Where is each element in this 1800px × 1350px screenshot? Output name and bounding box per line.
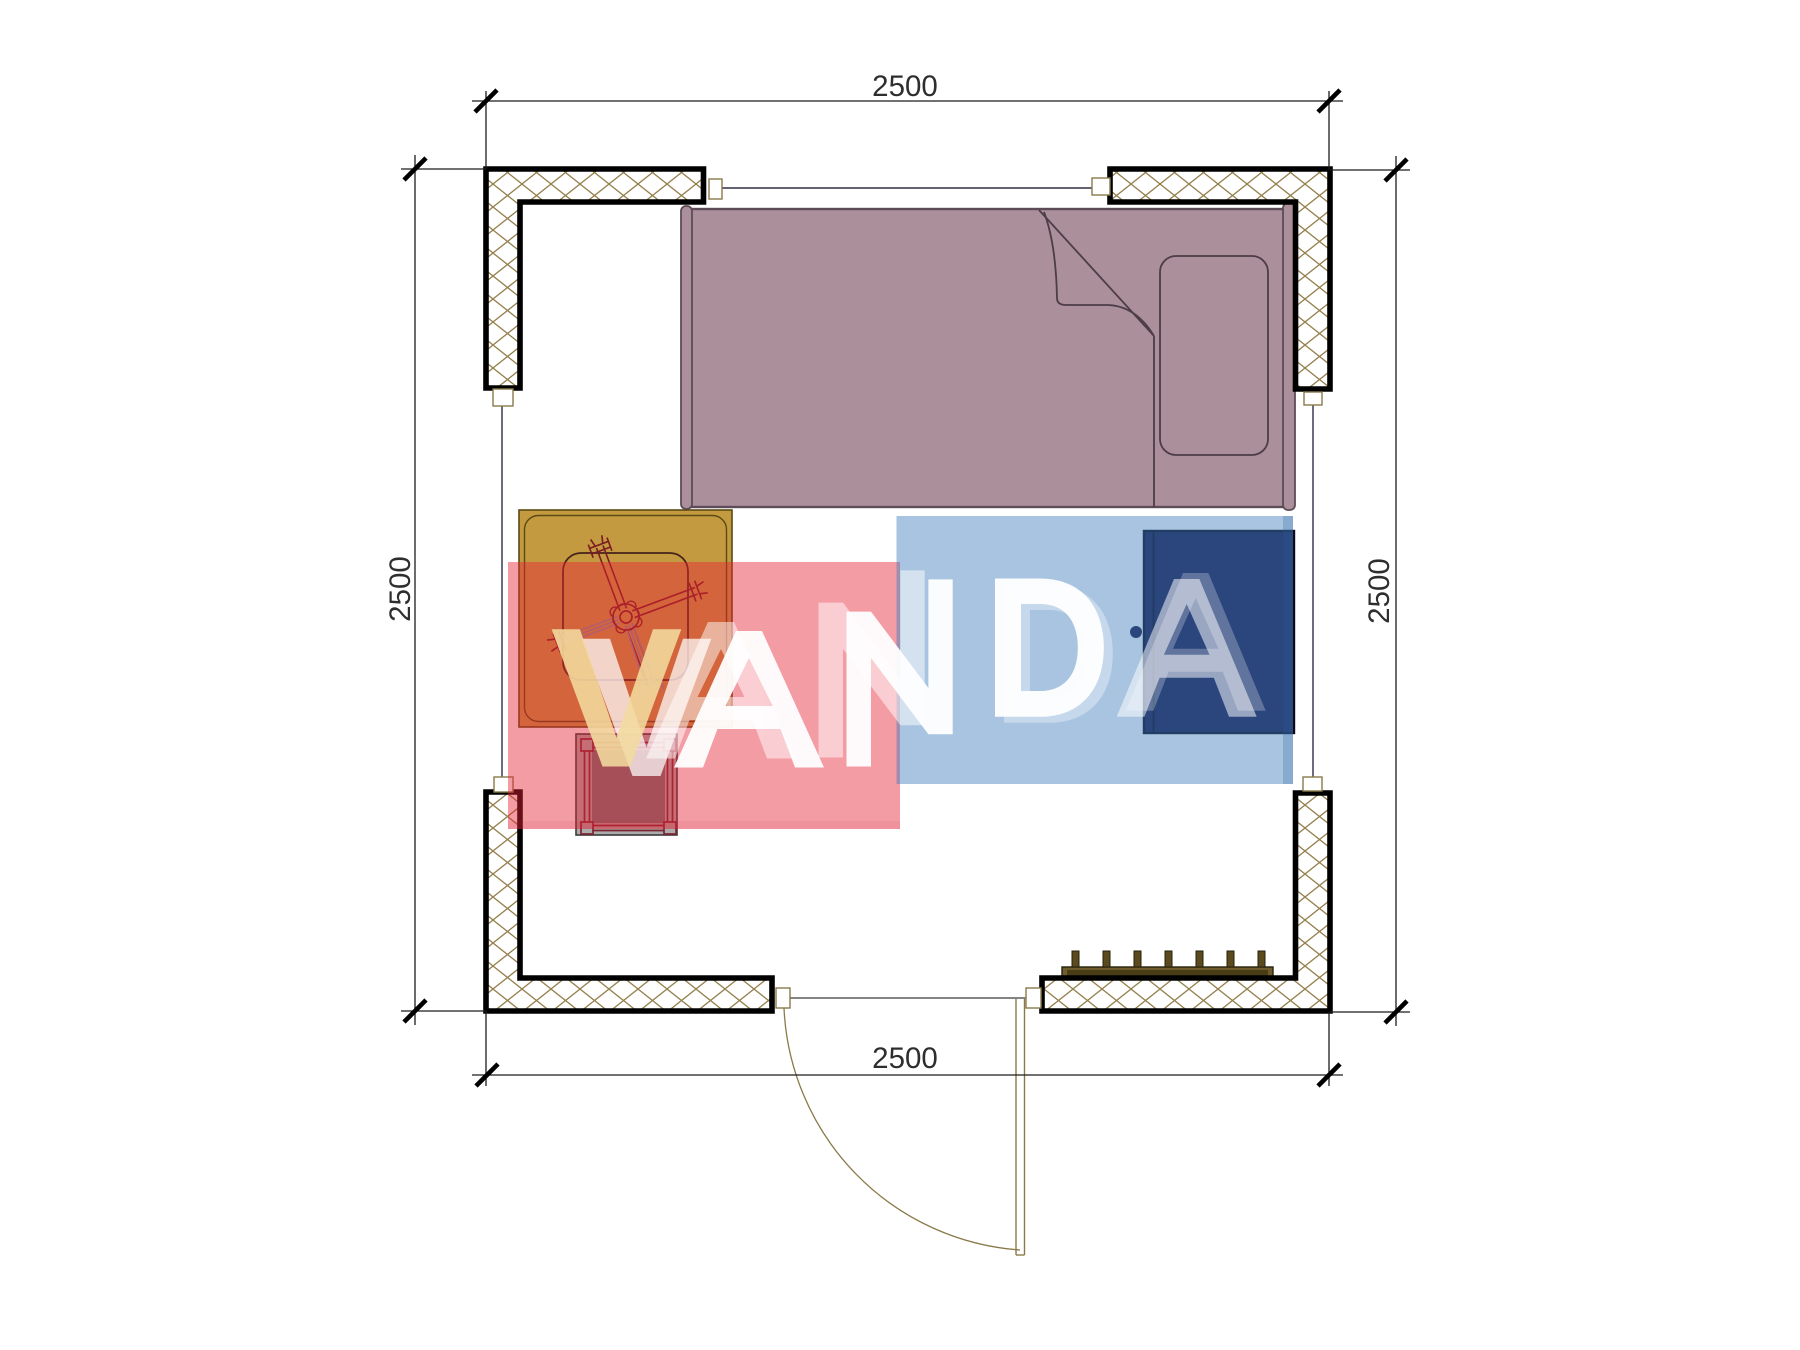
svg-text:2500: 2500	[872, 1042, 938, 1075]
svg-text:2500: 2500	[872, 70, 938, 103]
svg-text:2500: 2500	[384, 556, 417, 622]
svg-text:2500: 2500	[1363, 558, 1396, 624]
